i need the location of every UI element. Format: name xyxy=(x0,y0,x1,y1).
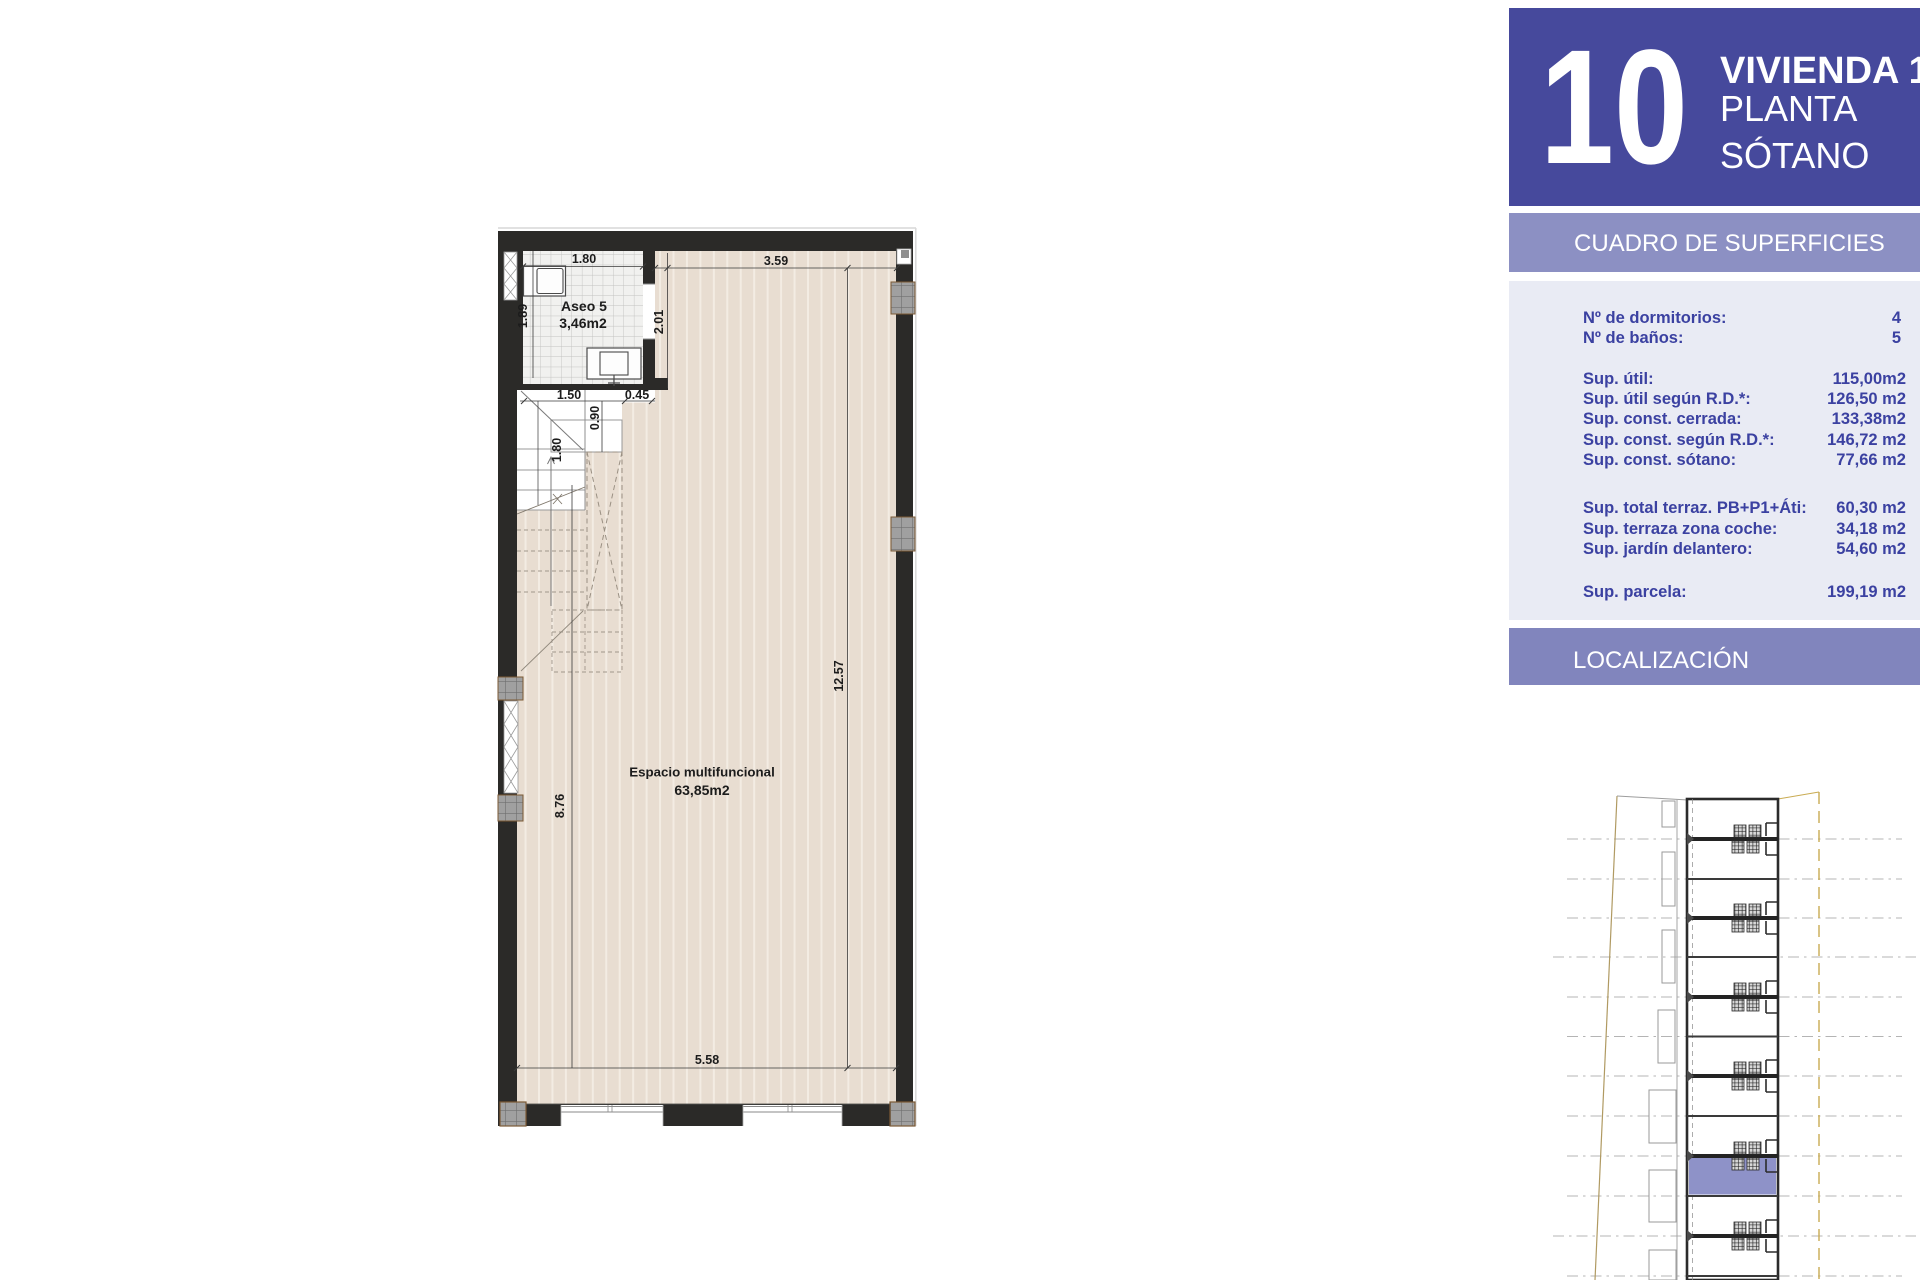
svg-text:1.50: 1.50 xyxy=(557,388,581,402)
svg-text:1.89: 1.89 xyxy=(516,304,530,328)
svg-text:60,30 m2: 60,30 m2 xyxy=(1836,499,1906,517)
svg-text:Aseo 5: Aseo 5 xyxy=(561,298,607,314)
svg-text:77,66 m2: 77,66 m2 xyxy=(1836,451,1906,469)
svg-text:115,00m2: 115,00m2 xyxy=(1833,370,1906,388)
svg-text:0.90: 0.90 xyxy=(588,406,602,430)
svg-text:Sup. terraza zona coche:: Sup. terraza zona coche: xyxy=(1583,520,1777,538)
svg-text:Sup. útil:: Sup. útil: xyxy=(1583,370,1654,388)
svg-text:3.59: 3.59 xyxy=(764,254,788,268)
svg-text:5.58: 5.58 xyxy=(695,1053,719,1067)
svg-text:34,18 m2: 34,18 m2 xyxy=(1836,520,1906,538)
svg-text:126,50 m2: 126,50 m2 xyxy=(1827,390,1906,408)
svg-text:Sup. jardín delantero:: Sup. jardín delantero: xyxy=(1583,540,1753,558)
svg-text:Nº de baños:: Nº de baños: xyxy=(1583,329,1683,347)
svg-text:133,38m2: 133,38m2 xyxy=(1832,410,1906,428)
svg-text:VIVIENDA 10: VIVIENDA 10 xyxy=(1720,50,1920,92)
svg-text:Sup. const. sótano:: Sup. const. sótano: xyxy=(1583,451,1736,469)
svg-text:LOCALIZACIÓN: LOCALIZACIÓN xyxy=(1573,647,1749,674)
svg-text:199,19 m2: 199,19 m2 xyxy=(1827,583,1906,601)
svg-text:2.01: 2.01 xyxy=(652,310,666,334)
svg-text:SÓTANO: SÓTANO xyxy=(1720,135,1869,176)
svg-text:4: 4 xyxy=(1892,309,1902,327)
svg-text:10: 10 xyxy=(1540,15,1688,198)
svg-text:1.80: 1.80 xyxy=(572,252,596,266)
svg-text:Sup. total terraz. PB+P1+Áti:: Sup. total terraz. PB+P1+Áti: xyxy=(1583,498,1807,517)
svg-text:1.80: 1.80 xyxy=(550,438,564,462)
svg-text:8.76: 8.76 xyxy=(553,794,567,818)
svg-text:63,85m2: 63,85m2 xyxy=(674,782,729,798)
svg-text:Sup. const. según R.D.*:: Sup. const. según R.D.*: xyxy=(1583,431,1775,449)
svg-text:Sup. parcela:: Sup. parcela: xyxy=(1583,583,1687,601)
svg-text:Espacio multifuncional: Espacio multifuncional xyxy=(629,765,775,780)
svg-text:54,60 m2: 54,60 m2 xyxy=(1836,540,1906,558)
svg-text:Sup. útil según R.D.*:: Sup. útil según R.D.*: xyxy=(1583,390,1751,408)
svg-text:0.45: 0.45 xyxy=(625,388,649,402)
svg-text:5: 5 xyxy=(1892,329,1901,347)
svg-text:3,46m2: 3,46m2 xyxy=(559,315,607,331)
svg-text:CUADRO DE SUPERFICIES: CUADRO DE SUPERFICIES xyxy=(1574,230,1885,257)
svg-text:12.57: 12.57 xyxy=(832,660,846,691)
svg-text:Nº de dormitorios:: Nº de dormitorios: xyxy=(1583,309,1727,327)
svg-text:Sup. const. cerrada:: Sup. const. cerrada: xyxy=(1583,410,1742,428)
svg-text:PLANTA: PLANTA xyxy=(1720,88,1857,129)
svg-text:146,72 m2: 146,72 m2 xyxy=(1827,431,1906,449)
